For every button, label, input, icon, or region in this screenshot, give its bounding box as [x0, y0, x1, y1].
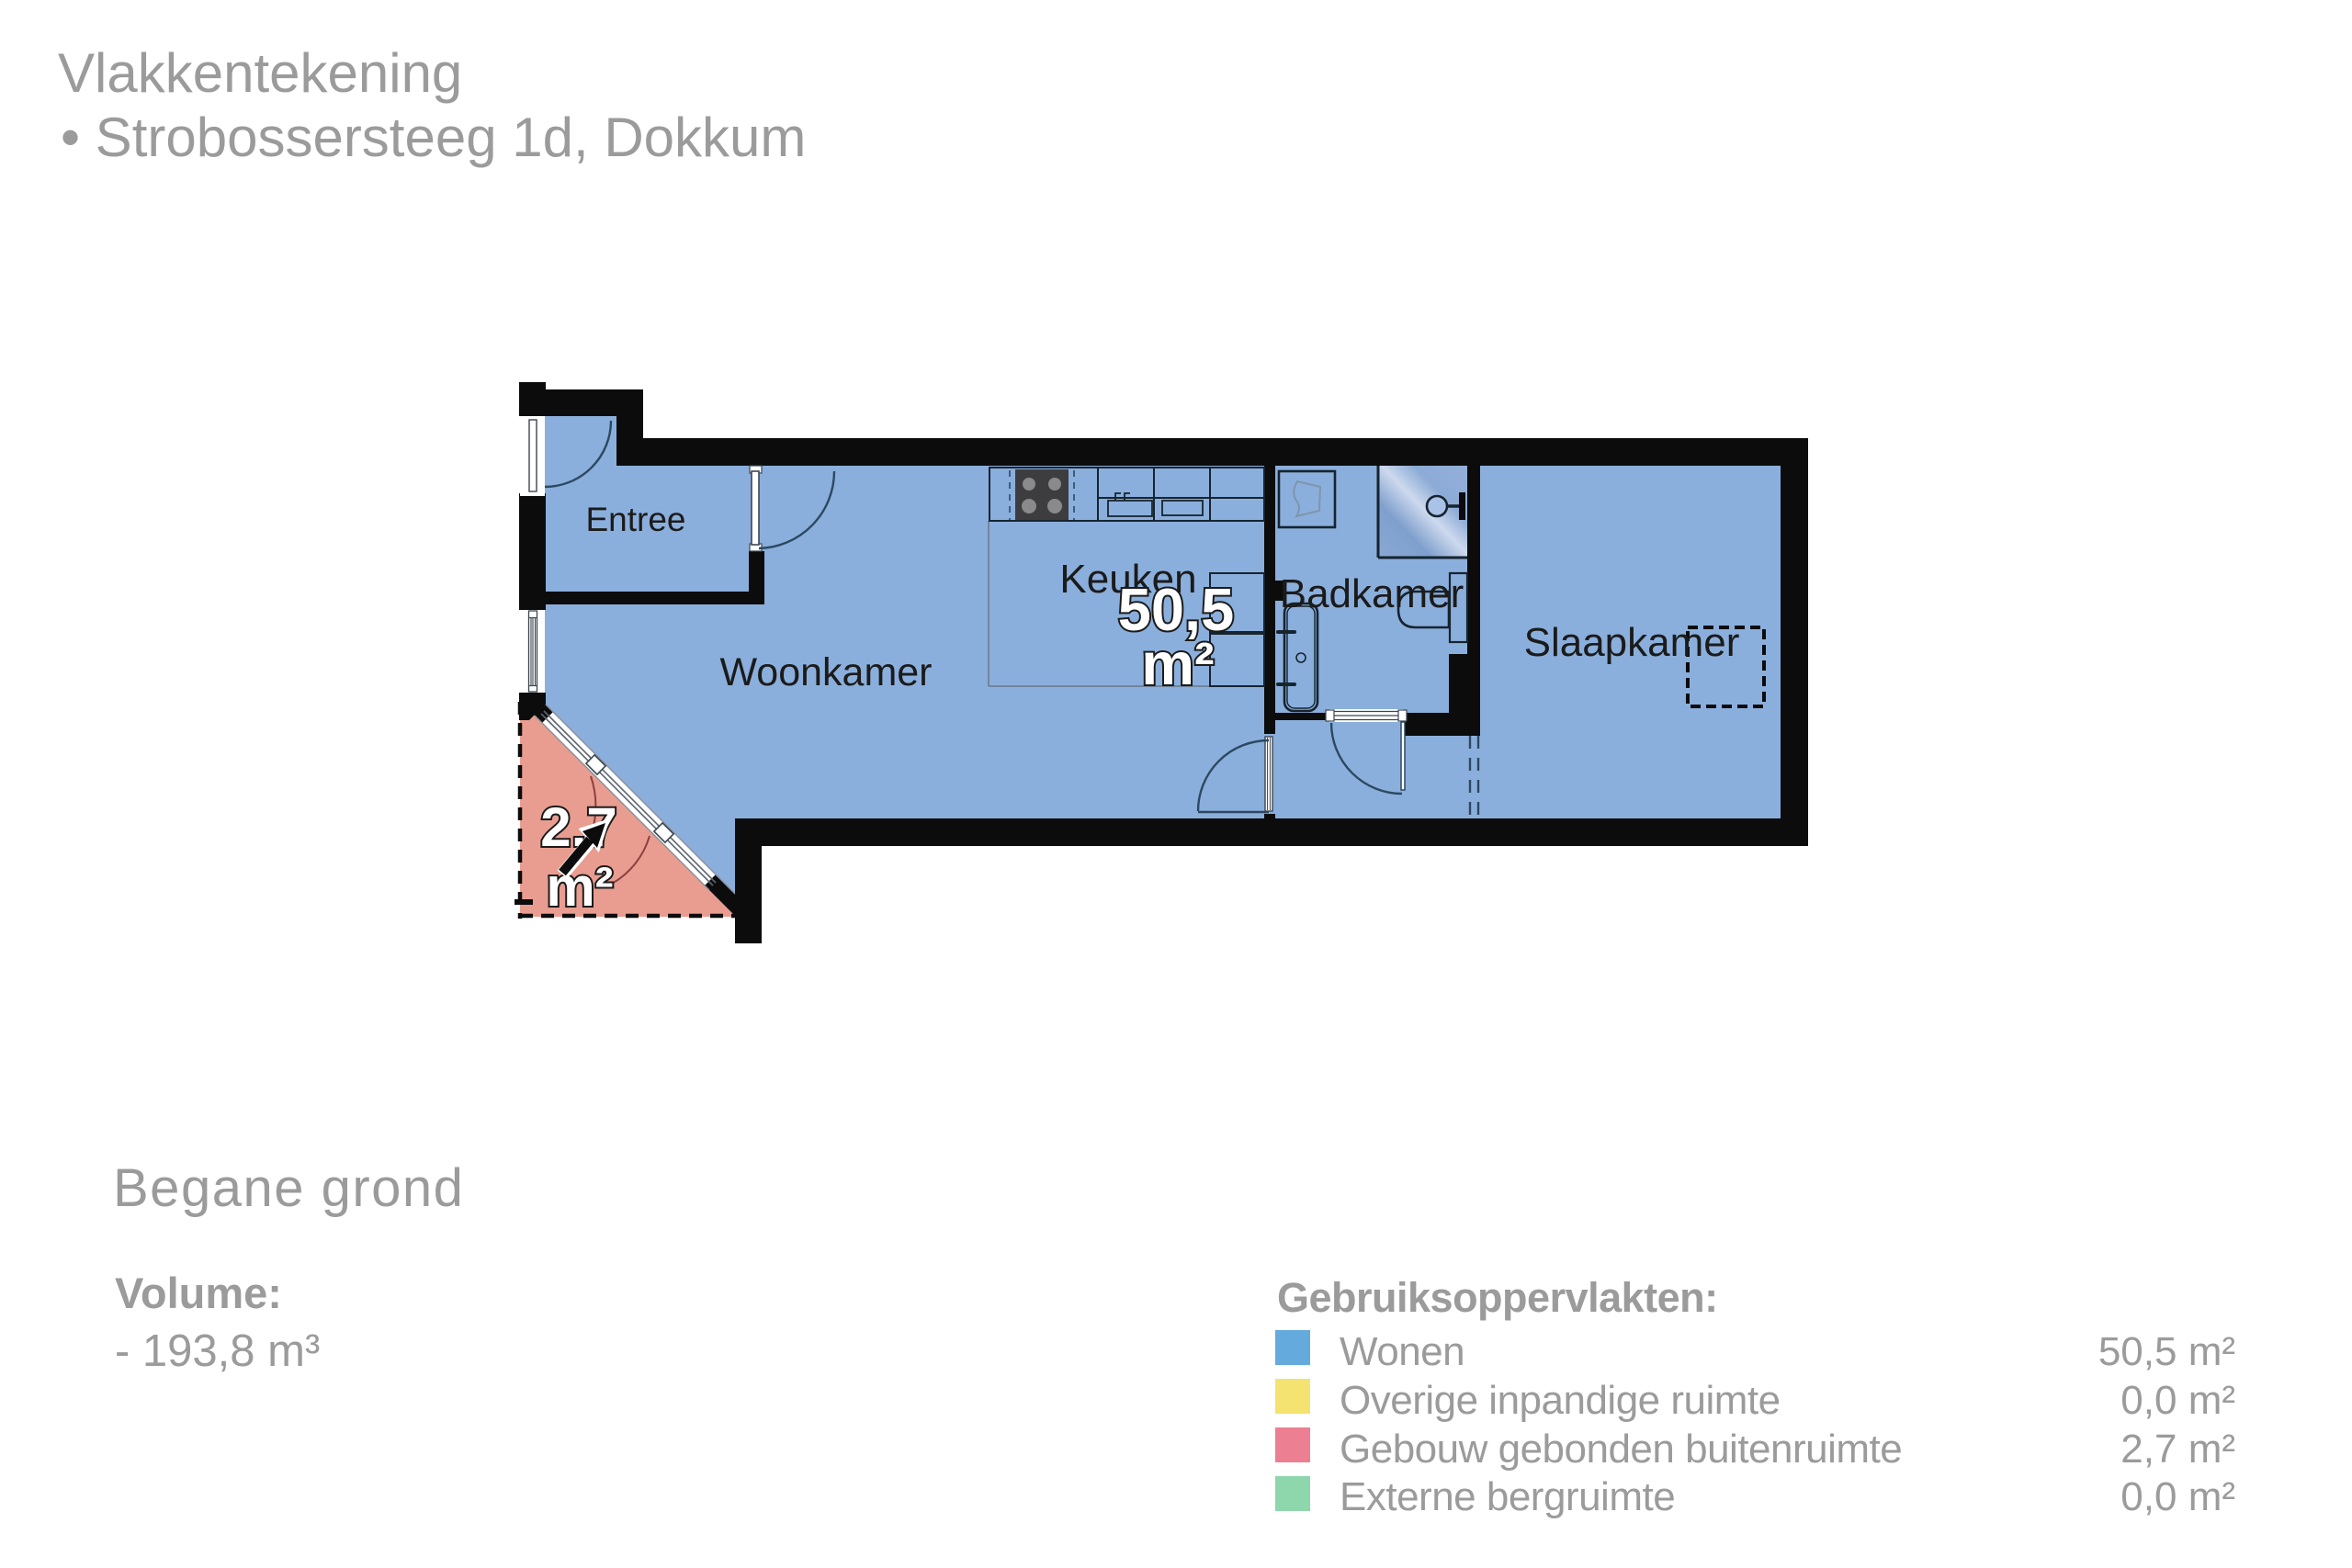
svg-text:Gebruiksoppervlakten:: Gebruiksoppervlakten:: [1277, 1274, 1718, 1321]
svg-text:Badkamer: Badkamer: [1280, 571, 1464, 616]
svg-text:Woonkamer: Woonkamer: [719, 650, 932, 694]
svg-text:m²: m²: [546, 856, 613, 918]
svg-text:Overige inpandige ruimte: Overige inpandige ruimte: [1340, 1378, 1781, 1423]
svg-text:Gebouw gebonden buitenruimte: Gebouw gebonden buitenruimte: [1340, 1427, 1902, 1472]
svg-text:Externe bergruimte: Externe bergruimte: [1340, 1474, 1675, 1519]
svg-text:50,5 m²: 50,5 m²: [2098, 1329, 2235, 1374]
svg-text:Slaapkamer: Slaapkamer: [1524, 620, 1740, 665]
svg-text:0,0 m²: 0,0 m²: [2120, 1378, 2235, 1423]
svg-text:Volume:: Volume:: [115, 1269, 282, 1317]
svg-text:2,7 m²: 2,7 m²: [2120, 1427, 2235, 1472]
svg-text:0,0 m²: 0,0 m²: [2120, 1474, 2235, 1519]
svg-text:m²: m²: [1141, 630, 1214, 697]
svg-text:Wonen: Wonen: [1340, 1329, 1464, 1374]
svg-text:- 193,8 m³: - 193,8 m³: [115, 1326, 320, 1376]
svg-text:Begane grond: Begane grond: [113, 1158, 464, 1218]
svg-text:Entree: Entree: [585, 501, 685, 538]
svg-text:Vlakkentekening: Vlakkentekening: [58, 42, 462, 104]
svg-text:• Strobossersteeg 1d, Dokkum: • Strobossersteeg 1d, Dokkum: [61, 107, 806, 168]
